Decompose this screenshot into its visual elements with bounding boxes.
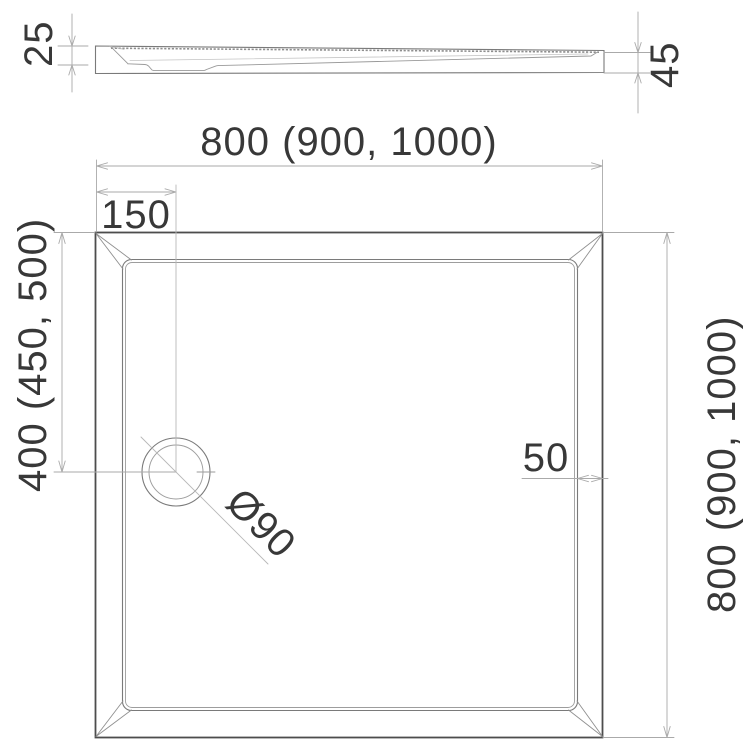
dim-25-extension-lines: [58, 46, 88, 65]
side-interior-line: [130, 54, 588, 61]
dim-800-right-extension-lines: [603, 233, 674, 738]
drawing-canvas: 25 45 800 (900, 1000): [0, 0, 743, 750]
side-view: 25 45: [17, 12, 687, 113]
dim-800-top-extension-lines: [97, 160, 603, 232]
dim-800-top-label: 800 (900, 1000): [200, 120, 497, 164]
dim-25: [58, 14, 88, 92]
dim-800-right: [603, 233, 674, 738]
dim-400-extension-lines: [54, 233, 176, 473]
dim-800-top: [97, 160, 603, 232]
dim-400-label: 400 (450, 500): [11, 218, 55, 492]
plan-view: 800 (900, 1000) 150 400 (450, 500) 800 (…: [11, 120, 743, 738]
dim-25-label: 25: [17, 21, 61, 68]
dim-50-label: 50: [523, 436, 570, 480]
dim-150-label: 150: [101, 193, 171, 237]
dim-800-right-label: 800 (900, 1000): [700, 316, 743, 613]
dim-diameter-label: Ø90: [218, 480, 305, 567]
shower-tray-technical-drawing: 25 45 800 (900, 1000): [0, 0, 743, 750]
plan-corner-miters: [96, 234, 603, 737]
plan-outer-edge: [96, 233, 603, 738]
plan-inner-edge-2: [126, 263, 575, 708]
dim-45-label: 45: [643, 42, 687, 89]
plan-inner-edge: [123, 260, 578, 711]
dim-400: [54, 233, 176, 473]
